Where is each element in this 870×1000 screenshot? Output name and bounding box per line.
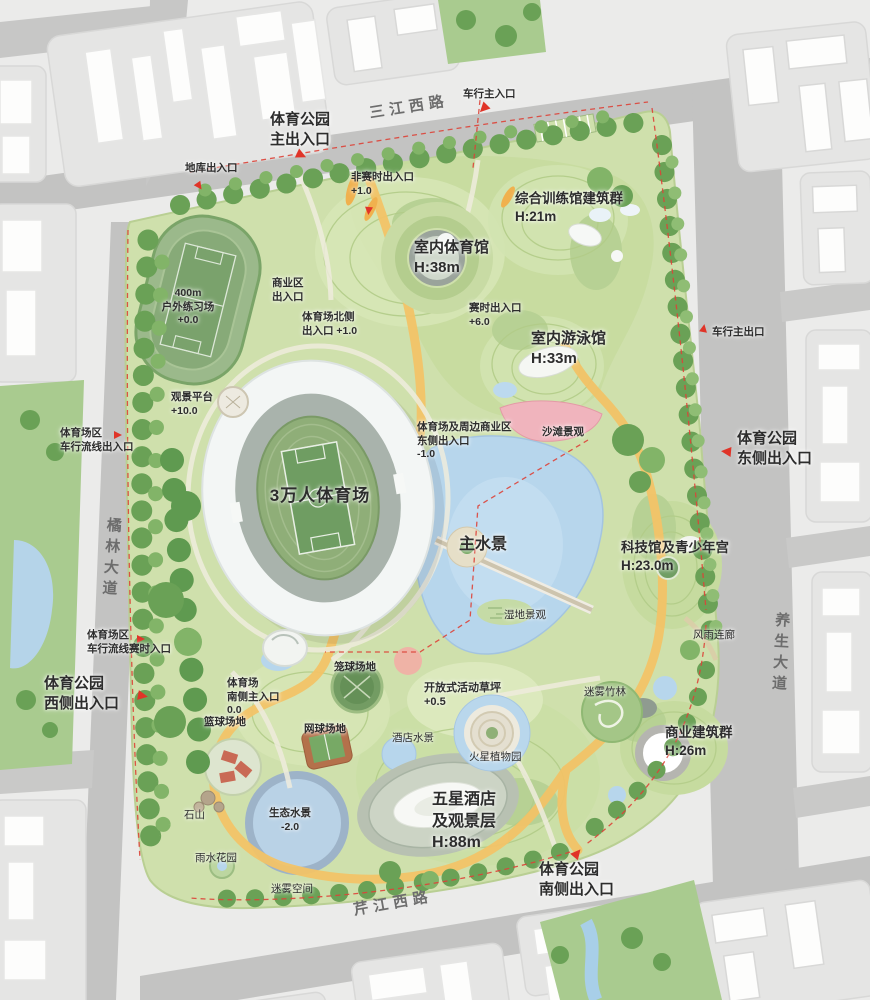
label-stadium-commercial-east-entrance: 体育场及周边商业区 东侧出入口 -1.0	[417, 421, 512, 462]
label-garage-entrance: 地库出入口	[185, 162, 238, 176]
label-east-entrance: 体育公园 东侧出入口	[737, 429, 812, 470]
label-practice-field: 400m 户外练习场 +0.0	[148, 287, 228, 328]
label-main-water: 主水景	[459, 534, 507, 556]
label-beach: 沙滩景观	[542, 426, 584, 440]
label-event-time-entrance: 赛时出入口 +6.0	[469, 302, 522, 329]
label-lawn: 开放式活动草坪 +0.5	[424, 681, 501, 710]
label-swimming-hall: 室内游泳馆 H:33m	[531, 329, 606, 370]
label-mist-space: 迷雾空间	[271, 883, 313, 897]
label-stadium-south-entrance: 体育场 南侧主入口 0.0	[227, 677, 280, 718]
label-basketball: 篮球场地	[204, 716, 246, 730]
label-cage-court: 笼球场地	[334, 661, 376, 675]
label-vehicle-main-exit: 车行主出口	[712, 326, 765, 340]
label-training-complex: 综合训练馆建筑群 H:21m	[515, 190, 623, 226]
label-south-entrance: 体育公园 南侧出入口	[539, 860, 614, 901]
label-indoor-gym: 室内体育馆 H:38m	[414, 238, 489, 279]
label-west-vehicle-entrance: 体育场区 车行流线出入口	[60, 427, 134, 454]
label-main-entrance: 体育公园 主出入口	[252, 110, 348, 151]
label-commercial-area-entrance: 商业区 出入口	[272, 277, 304, 304]
basketball-court-shape	[205, 739, 261, 795]
label-corridor: 风雨连廊	[693, 629, 735, 643]
label-non-event-entrance: 非赛时出入口 +1.0	[351, 171, 414, 198]
label-eco-water: 生态水景 -2.0	[255, 807, 325, 834]
label-bamboo: 迷雾竹林	[584, 686, 626, 700]
label-stadium-north-entrance: 体育场北侧 出入口 +1.0	[302, 311, 357, 338]
label-viewing-platform: 观景平台 +10.0	[171, 391, 213, 418]
viewing-platform-shape	[218, 387, 248, 417]
label-rain-garden: 雨水花园	[195, 852, 237, 866]
label-hotel: 五星酒店 及观景层 H:88m	[432, 789, 496, 854]
label-wetland: 湿地景观	[504, 609, 546, 623]
label-mars-garden: 火星植物园	[469, 751, 522, 765]
label-rock: 石山	[184, 809, 205, 823]
master-plan-map: 体育公园 主出入口 三江西路 车行主入口 地库出入口 非赛时出入口 +1.0 综…	[0, 0, 870, 1000]
label-hotel-water: 酒店水景	[392, 732, 434, 746]
label-west-entrance: 体育公园 西侧出入口	[44, 674, 119, 715]
label-tennis: 网球场地	[304, 723, 346, 737]
label-vehicle-main-entrance: 车行主入口	[463, 88, 516, 102]
label-west-vehicle-event-entrance: 体育场区 车行流线赛时入口	[87, 629, 171, 656]
label-stadium: 3万人体育场	[266, 485, 374, 507]
label-commercial-buildings: 商业建筑群 H:26m	[665, 724, 733, 760]
label-science-youth: 科技馆及青少年宫 H:23.0m	[621, 539, 729, 575]
mist-space-shape	[263, 630, 307, 666]
